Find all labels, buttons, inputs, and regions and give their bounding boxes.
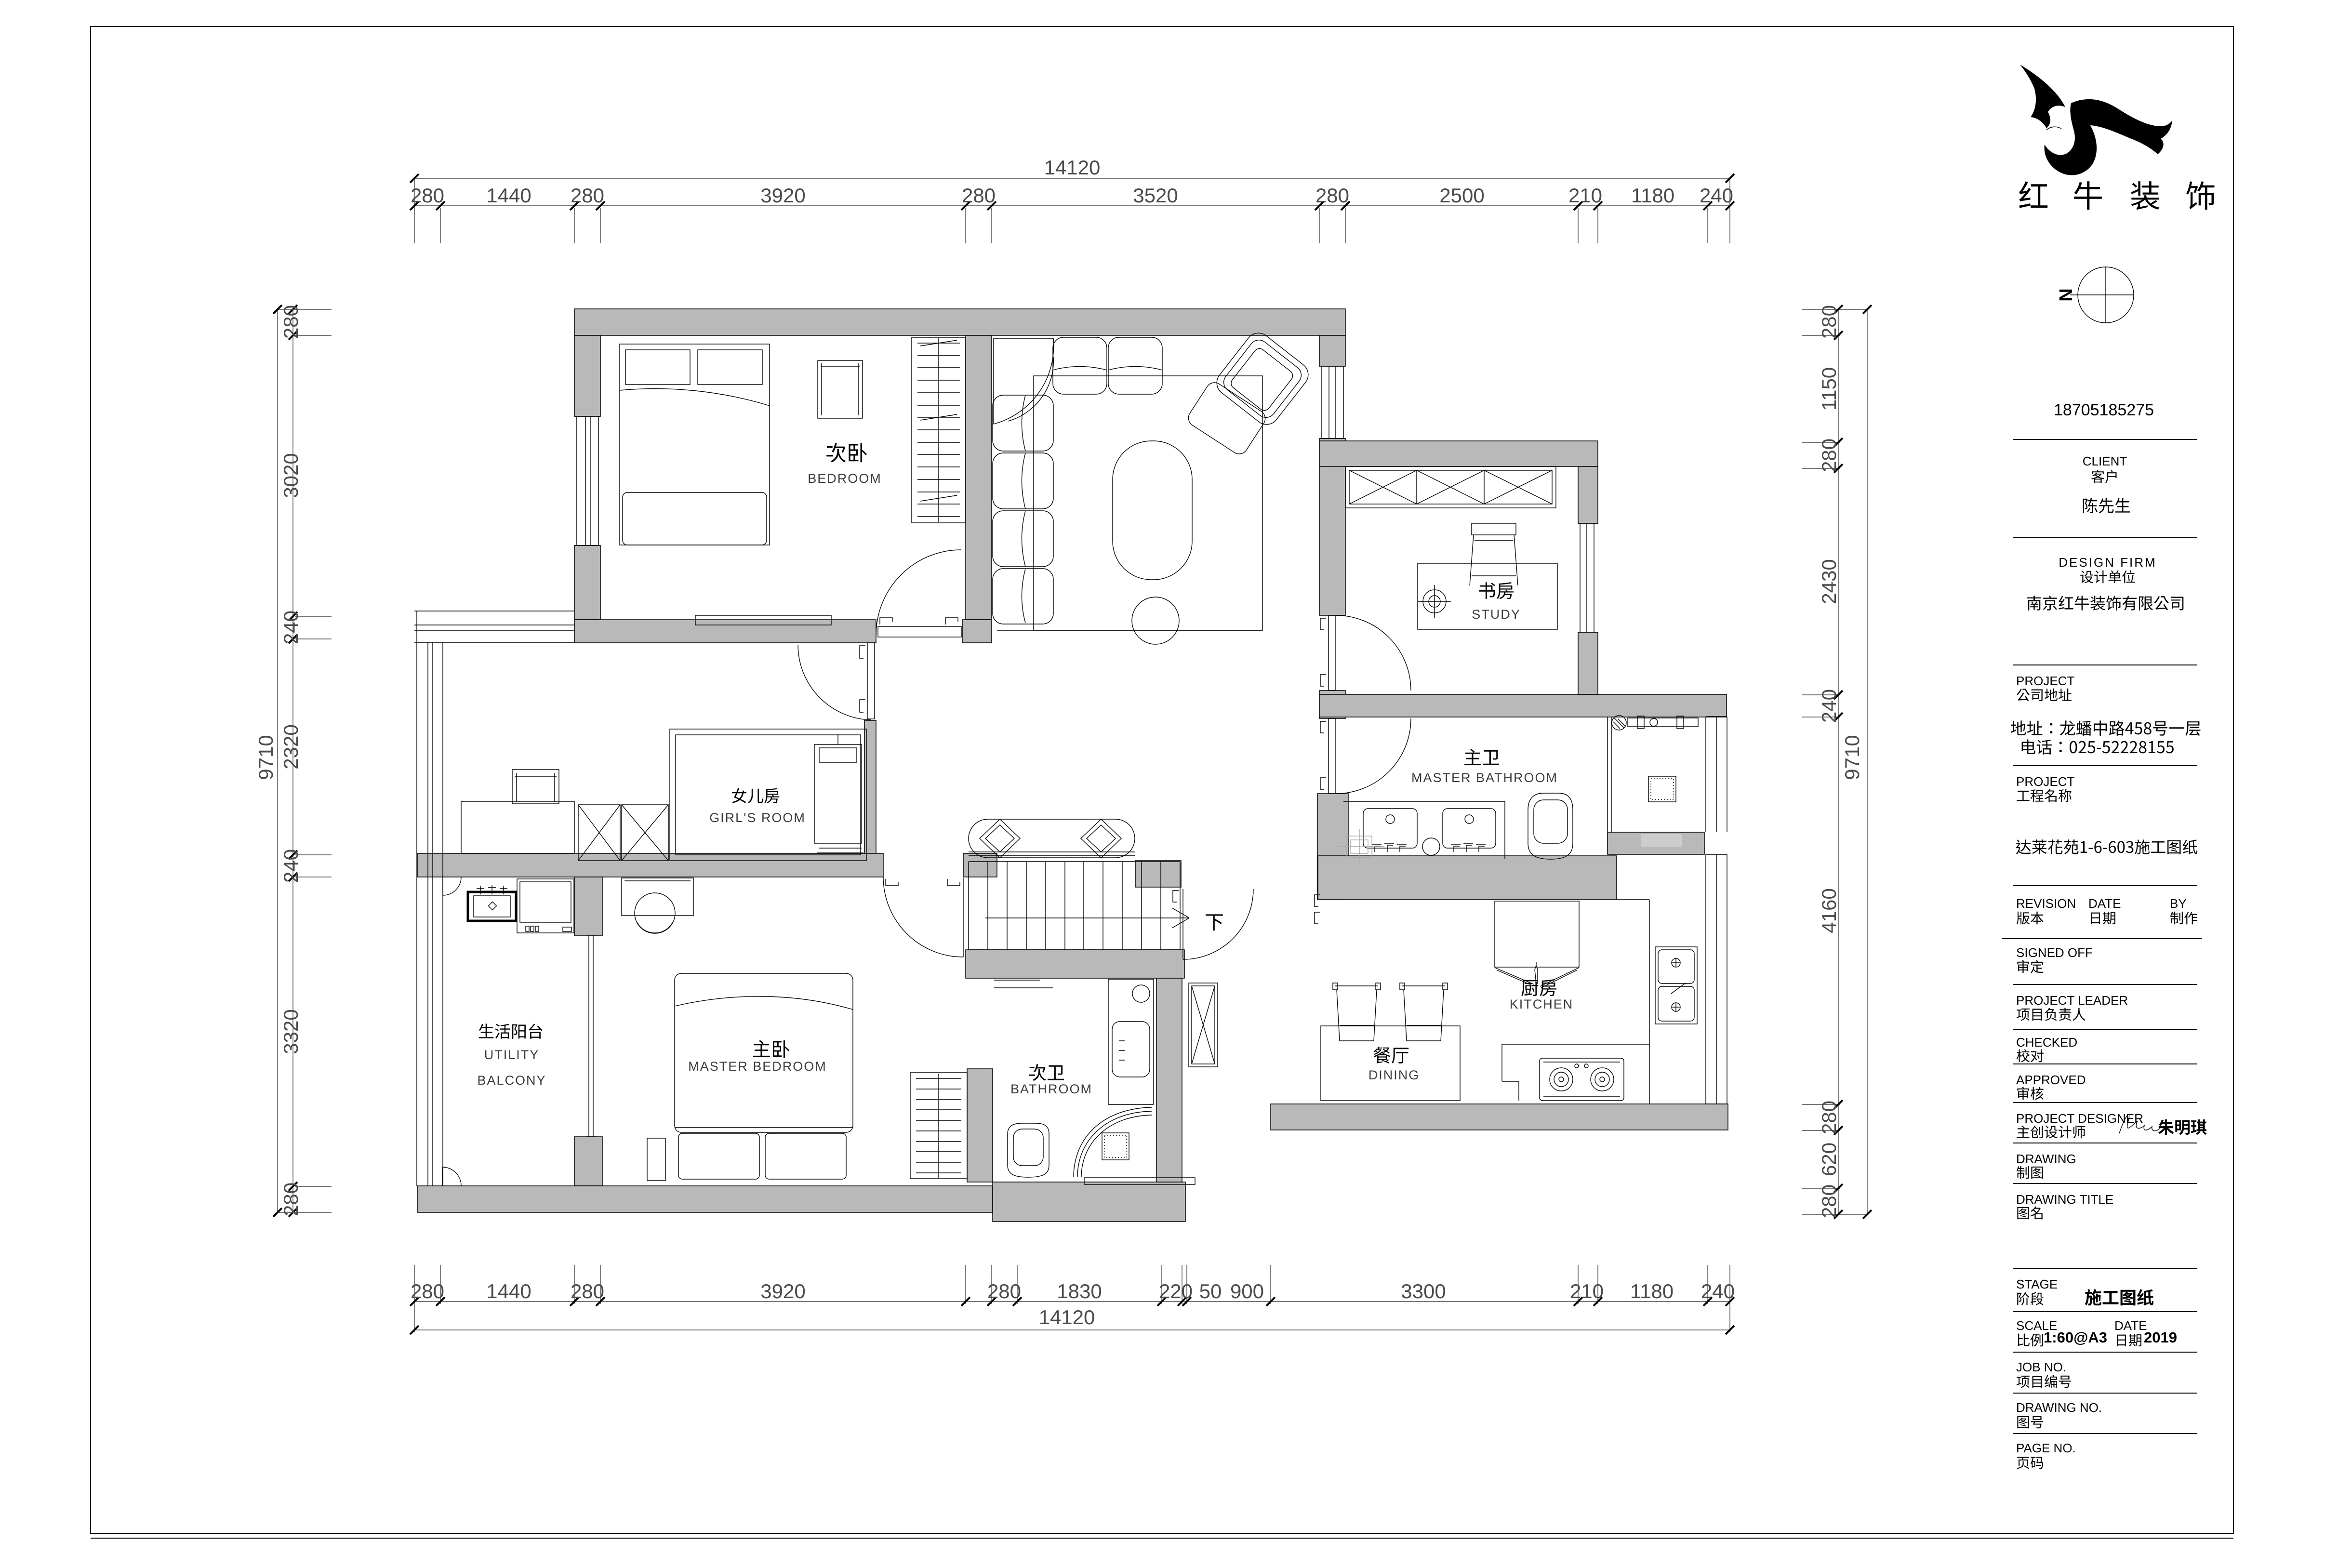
svg-text:PROJECT: PROJECT — [2016, 774, 2074, 789]
svg-text:3300: 3300 — [1401, 1280, 1446, 1302]
svg-text:1440: 1440 — [486, 184, 531, 207]
svg-text:SIGNED OFF: SIGNED OFF — [2016, 945, 2093, 960]
svg-text:280: 280 — [571, 1280, 604, 1302]
svg-text:1180: 1180 — [1631, 184, 1674, 207]
svg-text:1:60@A3: 1:60@A3 — [2044, 1329, 2107, 1346]
svg-text:PROJECT: PROJECT — [2016, 674, 2074, 688]
svg-text:PROJECT LEADER: PROJECT LEADER — [2016, 993, 2128, 1008]
svg-text:280: 280 — [1818, 305, 1840, 339]
svg-text:280: 280 — [571, 184, 604, 207]
svg-text:KITCHEN: KITCHEN — [1510, 997, 1574, 1011]
svg-text:3920: 3920 — [760, 184, 805, 207]
svg-text:BY: BY — [2170, 896, 2187, 911]
svg-text:2500: 2500 — [1439, 184, 1484, 207]
svg-text:280: 280 — [1818, 1184, 1840, 1218]
svg-text:280: 280 — [411, 184, 444, 207]
svg-text:BEDROOM: BEDROOM — [808, 471, 882, 486]
svg-text:900: 900 — [1230, 1280, 1264, 1302]
svg-text:280: 280 — [411, 1280, 444, 1302]
svg-text:DATE: DATE — [2114, 1318, 2147, 1333]
svg-text:3920: 3920 — [760, 1280, 805, 1302]
svg-text:1830: 1830 — [1057, 1280, 1102, 1302]
svg-text:1150: 1150 — [1818, 367, 1840, 411]
svg-text:240: 240 — [1701, 1280, 1735, 1302]
svg-text:DRAWING TITLE: DRAWING TITLE — [2016, 1192, 2113, 1207]
svg-text:9710: 9710 — [1841, 735, 1863, 780]
svg-text:GIRL'S ROOM: GIRL'S ROOM — [709, 811, 806, 825]
svg-text:14120: 14120 — [1044, 156, 1101, 179]
svg-text:1440: 1440 — [486, 1280, 531, 1302]
svg-text:280: 280 — [1818, 439, 1840, 472]
svg-text:14120: 14120 — [1039, 1306, 1095, 1329]
svg-text:620: 620 — [1818, 1143, 1840, 1176]
svg-text:N: N — [2056, 288, 2076, 301]
svg-text:3320: 3320 — [279, 1009, 302, 1054]
svg-text:BALCONY: BALCONY — [477, 1073, 546, 1088]
svg-text:STUDY: STUDY — [1472, 607, 1521, 622]
svg-text:240: 240 — [279, 611, 302, 644]
svg-text:2430: 2430 — [1818, 559, 1840, 604]
svg-text:2019: 2019 — [2144, 1329, 2177, 1346]
svg-text:MASTER BEDROOM: MASTER BEDROOM — [688, 1059, 827, 1074]
svg-text:DRAWING NO.: DRAWING NO. — [2016, 1400, 2102, 1415]
svg-text:MASTER BATHROOM: MASTER BATHROOM — [1411, 771, 1558, 785]
svg-text:280: 280 — [1818, 1101, 1840, 1134]
svg-text:PAGE NO.: PAGE NO. — [2016, 1441, 2076, 1455]
svg-text:CLIENT: CLIENT — [2083, 454, 2127, 468]
svg-text:JOB NO.: JOB NO. — [2016, 1360, 2066, 1374]
svg-text:3020: 3020 — [279, 453, 302, 498]
svg-text:DINING: DINING — [1368, 1068, 1420, 1082]
svg-text:210: 210 — [1568, 184, 1602, 207]
svg-text:DESIGN FIRM: DESIGN FIRM — [2059, 555, 2156, 570]
svg-text:280: 280 — [279, 305, 302, 339]
svg-text:3520: 3520 — [1133, 184, 1178, 207]
svg-text:240: 240 — [1818, 689, 1840, 723]
svg-text:STAGE: STAGE — [2016, 1277, 2058, 1291]
svg-text:220: 220 — [1159, 1280, 1193, 1302]
svg-text:DATE: DATE — [2088, 896, 2121, 911]
svg-text:APPROVED: APPROVED — [2016, 1073, 2086, 1087]
svg-text:CHECKED: CHECKED — [2016, 1035, 2077, 1050]
svg-text:4160: 4160 — [1818, 888, 1840, 933]
svg-text:280: 280 — [279, 1183, 302, 1216]
svg-text:18705185275: 18705185275 — [2054, 401, 2154, 419]
svg-text:REVISION: REVISION — [2016, 896, 2076, 911]
svg-text:9710: 9710 — [254, 735, 277, 780]
svg-text:UTILITY: UTILITY — [484, 1048, 540, 1062]
svg-text:1180: 1180 — [1630, 1280, 1674, 1302]
svg-text:280: 280 — [1315, 184, 1349, 207]
svg-text:280: 280 — [962, 184, 996, 207]
svg-text:280: 280 — [987, 1280, 1021, 1302]
svg-text:2320: 2320 — [279, 724, 302, 769]
svg-text:240: 240 — [1700, 184, 1733, 207]
svg-text:240: 240 — [279, 849, 302, 883]
svg-text:210: 210 — [1570, 1280, 1604, 1302]
svg-text:BATHROOM: BATHROOM — [1010, 1082, 1092, 1096]
svg-text:50: 50 — [1199, 1280, 1222, 1302]
svg-text:PROJECT DESIGNER: PROJECT DESIGNER — [2016, 1111, 2143, 1126]
svg-text:DRAWING: DRAWING — [2016, 1152, 2076, 1166]
